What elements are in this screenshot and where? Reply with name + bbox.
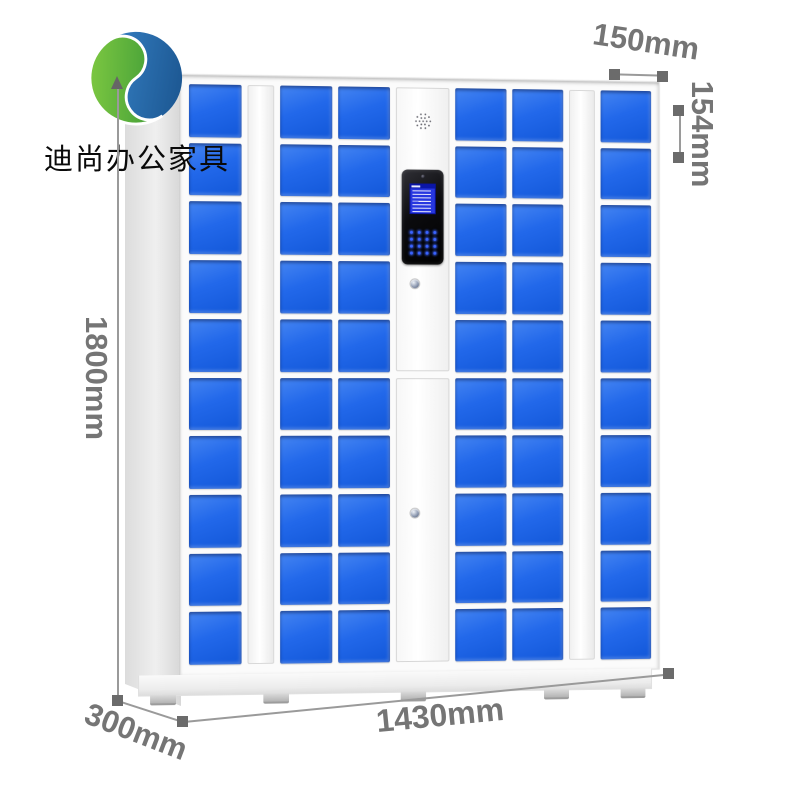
brand-logo-icon — [88, 30, 184, 126]
locker-door[interactable] — [600, 205, 651, 257]
locker-door[interactable] — [455, 146, 507, 198]
locker-door[interactable] — [512, 262, 563, 314]
locker-door[interactable] — [512, 378, 563, 430]
keypad-key[interactable] — [433, 238, 436, 241]
locker-door[interactable] — [455, 551, 507, 603]
product-image: 迪尚办公家具 — [0, 0, 800, 800]
keypad-key[interactable] — [433, 231, 436, 234]
control-upper-door — [396, 87, 449, 371]
lcd-screen — [410, 183, 436, 214]
locker-door[interactable] — [189, 201, 242, 254]
locker-door[interactable] — [280, 378, 333, 430]
locker-door[interactable] — [455, 262, 507, 314]
top-depth-dimension-label: 150mm — [582, 15, 710, 69]
keypad-key[interactable] — [417, 245, 420, 248]
locker-door[interactable] — [189, 378, 242, 431]
locker-door[interactable] — [338, 319, 390, 371]
locker-door[interactable] — [280, 436, 333, 489]
dimension-marker — [609, 69, 620, 80]
locker-door[interactable] — [338, 86, 390, 139]
locker-door[interactable] — [338, 610, 390, 663]
locker-door[interactable] — [280, 319, 333, 372]
locker-door[interactable] — [512, 89, 563, 141]
keypad-key[interactable] — [410, 238, 413, 241]
dimension-marker — [673, 152, 684, 163]
locker-door[interactable] — [600, 90, 651, 142]
door-column-5 — [512, 89, 563, 661]
locker-door[interactable] — [338, 494, 390, 547]
control-panel — [402, 169, 444, 264]
locker-door[interactable] — [600, 435, 651, 487]
locker-door[interactable] — [280, 86, 333, 139]
locker-door[interactable] — [338, 261, 390, 314]
locker-door[interactable] — [280, 611, 333, 664]
cabinet-foot — [150, 695, 176, 705]
locker-door[interactable] — [455, 609, 507, 662]
locker-door[interactable] — [189, 553, 242, 606]
locker-door[interactable] — [455, 493, 507, 545]
height-dimension-label: 1800mm — [78, 274, 114, 482]
locker-door[interactable] — [189, 260, 242, 313]
locker-door[interactable] — [338, 145, 390, 198]
keypad-key[interactable] — [417, 231, 420, 234]
height-dimension-line — [117, 87, 119, 697]
locker-door[interactable] — [600, 550, 651, 602]
locker-door[interactable] — [455, 320, 507, 372]
locker-door[interactable] — [455, 436, 507, 488]
locker-door[interactable] — [600, 378, 651, 430]
cell-height-dimension-label: 154mm — [684, 76, 720, 192]
door-column-6 — [600, 90, 651, 659]
locker-door[interactable] — [600, 148, 651, 200]
divider-panel — [569, 90, 594, 660]
locker-door[interactable] — [512, 551, 563, 603]
dimension-marker — [657, 71, 668, 82]
cabinet-foot — [263, 693, 289, 703]
locker-door[interactable] — [189, 612, 242, 665]
keypad-key[interactable] — [410, 231, 413, 234]
locker-door[interactable] — [512, 493, 563, 545]
locker-door[interactable] — [280, 144, 333, 197]
locker-door[interactable] — [512, 435, 563, 487]
brand-name: 迪尚办公家具 — [44, 136, 264, 178]
divider-right — [569, 90, 594, 660]
door-column-3 — [338, 86, 390, 663]
locker-door[interactable] — [455, 204, 507, 256]
locker-door[interactable] — [189, 319, 242, 372]
lcd-header-bar — [410, 184, 434, 188]
locker-door[interactable] — [338, 378, 390, 430]
locker-door[interactable] — [600, 263, 651, 315]
door-column-4 — [455, 88, 507, 661]
speaker-grille-icon — [412, 110, 433, 132]
locker-door[interactable] — [600, 607, 651, 659]
locker-door[interactable] — [189, 84, 242, 137]
keypad-key[interactable] — [425, 252, 428, 255]
locker-door[interactable] — [280, 202, 333, 255]
keypad-key[interactable] — [425, 245, 428, 248]
control-lower-door[interactable] — [396, 378, 449, 662]
keypad-key[interactable] — [410, 245, 413, 248]
control-column — [396, 87, 449, 662]
locker-door[interactable] — [189, 495, 242, 548]
door-column-2 — [280, 86, 333, 664]
locker-door[interactable] — [512, 205, 563, 257]
keypad-key[interactable] — [433, 252, 436, 255]
keypad-key[interactable] — [425, 231, 428, 234]
locker-door[interactable] — [338, 552, 390, 605]
locker-door[interactable] — [338, 436, 390, 488]
dimension-marker — [112, 695, 123, 706]
locker-door[interactable] — [189, 436, 242, 489]
locker-door[interactable] — [512, 320, 563, 372]
lcd-text-lines — [412, 190, 430, 212]
camera-icon — [421, 175, 425, 179]
keypad-key[interactable] — [433, 245, 436, 248]
keypad-key[interactable] — [417, 238, 420, 241]
locker-door[interactable] — [600, 493, 651, 545]
keypad-key[interactable] — [417, 252, 420, 255]
cell-height-dimension-line — [679, 112, 681, 157]
locker-door[interactable] — [512, 147, 563, 199]
keypad[interactable] — [410, 231, 436, 255]
cabinet-foot — [544, 689, 569, 699]
locker-door[interactable] — [600, 320, 651, 372]
dimension-marker — [663, 668, 674, 679]
dimension-marker — [673, 105, 684, 116]
locker-door[interactable] — [455, 88, 507, 141]
locker-door[interactable] — [455, 378, 507, 430]
height-dimension-arrow — [111, 76, 123, 89]
keypad-key[interactable] — [425, 238, 428, 241]
keyhole-icon[interactable] — [410, 279, 419, 288]
locker-door[interactable] — [338, 203, 390, 256]
locker-door[interactable] — [280, 261, 333, 314]
keyhole-icon[interactable] — [410, 509, 419, 518]
keypad-key[interactable] — [410, 252, 413, 255]
locker-door[interactable] — [280, 552, 333, 605]
locker-door[interactable] — [512, 608, 563, 660]
cabinet-foot — [621, 688, 646, 698]
locker-door[interactable] — [280, 494, 333, 547]
dimension-marker — [177, 716, 188, 727]
